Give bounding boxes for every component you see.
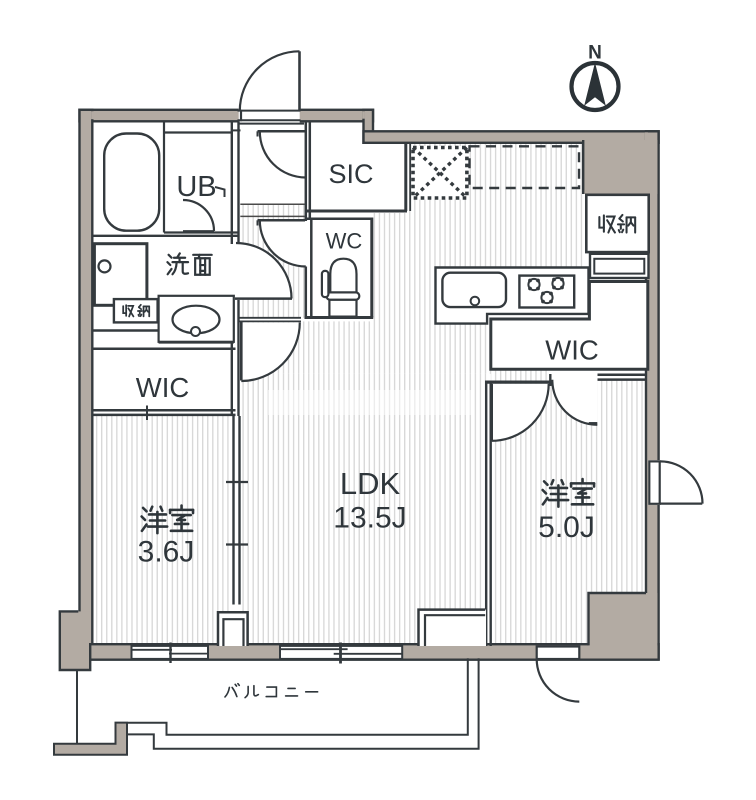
svg-text:WIC: WIC — [545, 334, 598, 365]
svg-text:5.0J: 5.0J — [538, 511, 595, 544]
svg-text:13.5J: 13.5J — [333, 501, 406, 534]
svg-text:WIC: WIC — [136, 372, 189, 403]
svg-text:3.6J: 3.6J — [138, 536, 195, 569]
svg-text:UB: UB — [176, 171, 216, 203]
svg-text:N: N — [588, 43, 602, 64]
svg-text:LDK: LDK — [340, 466, 401, 501]
svg-text:WC: WC — [326, 228, 363, 253]
svg-text:SIC: SIC — [328, 159, 373, 189]
